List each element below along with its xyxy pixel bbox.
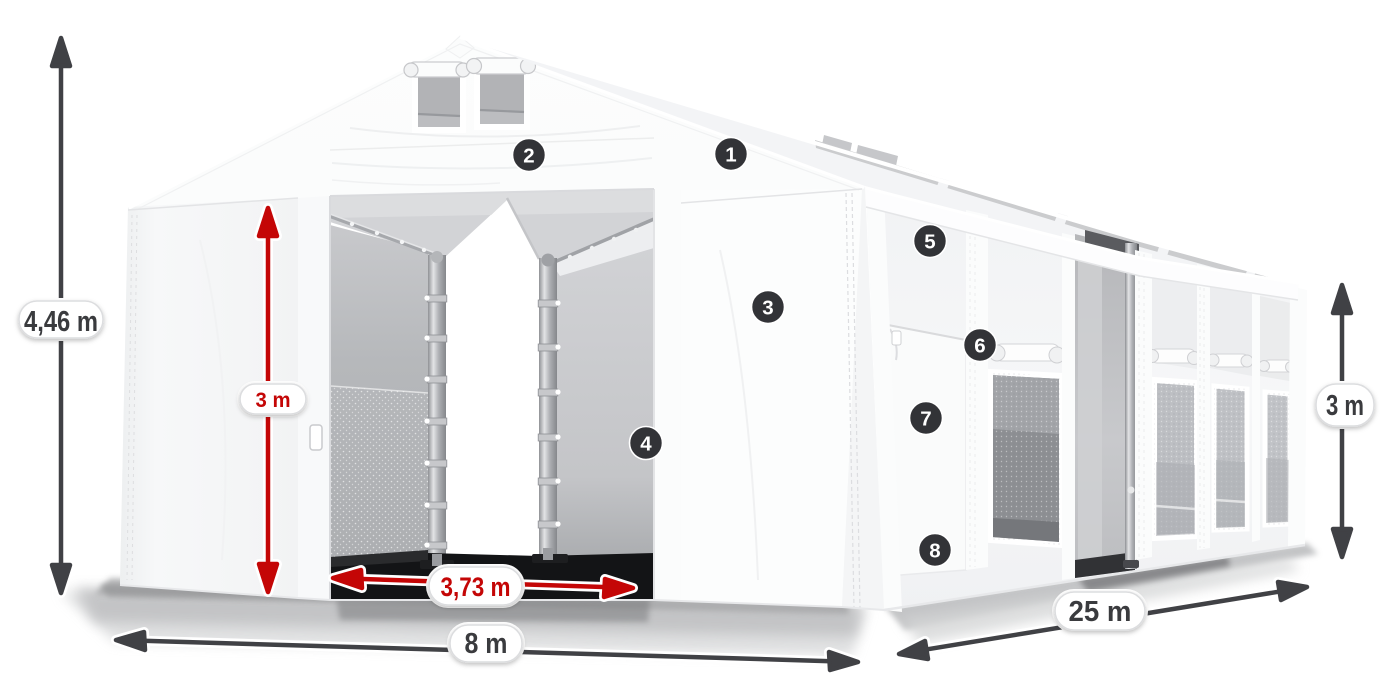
- svg-text:6: 6: [974, 334, 985, 357]
- svg-text:8 m: 8 m: [465, 628, 508, 660]
- svg-text:3: 3: [762, 296, 773, 319]
- svg-text:4,46 m: 4,46 m: [24, 306, 98, 338]
- svg-text:3 m: 3 m: [1326, 390, 1364, 422]
- svg-text:5: 5: [924, 230, 935, 253]
- svg-text:3,73 m: 3,73 m: [441, 572, 511, 602]
- svg-text:1: 1: [725, 143, 736, 166]
- svg-text:2: 2: [523, 144, 534, 167]
- svg-text:3 m: 3 m: [256, 389, 291, 412]
- svg-text:7: 7: [920, 407, 931, 430]
- svg-text:4: 4: [640, 432, 652, 455]
- svg-text:8: 8: [929, 539, 940, 562]
- svg-text:25 m: 25 m: [1069, 596, 1132, 628]
